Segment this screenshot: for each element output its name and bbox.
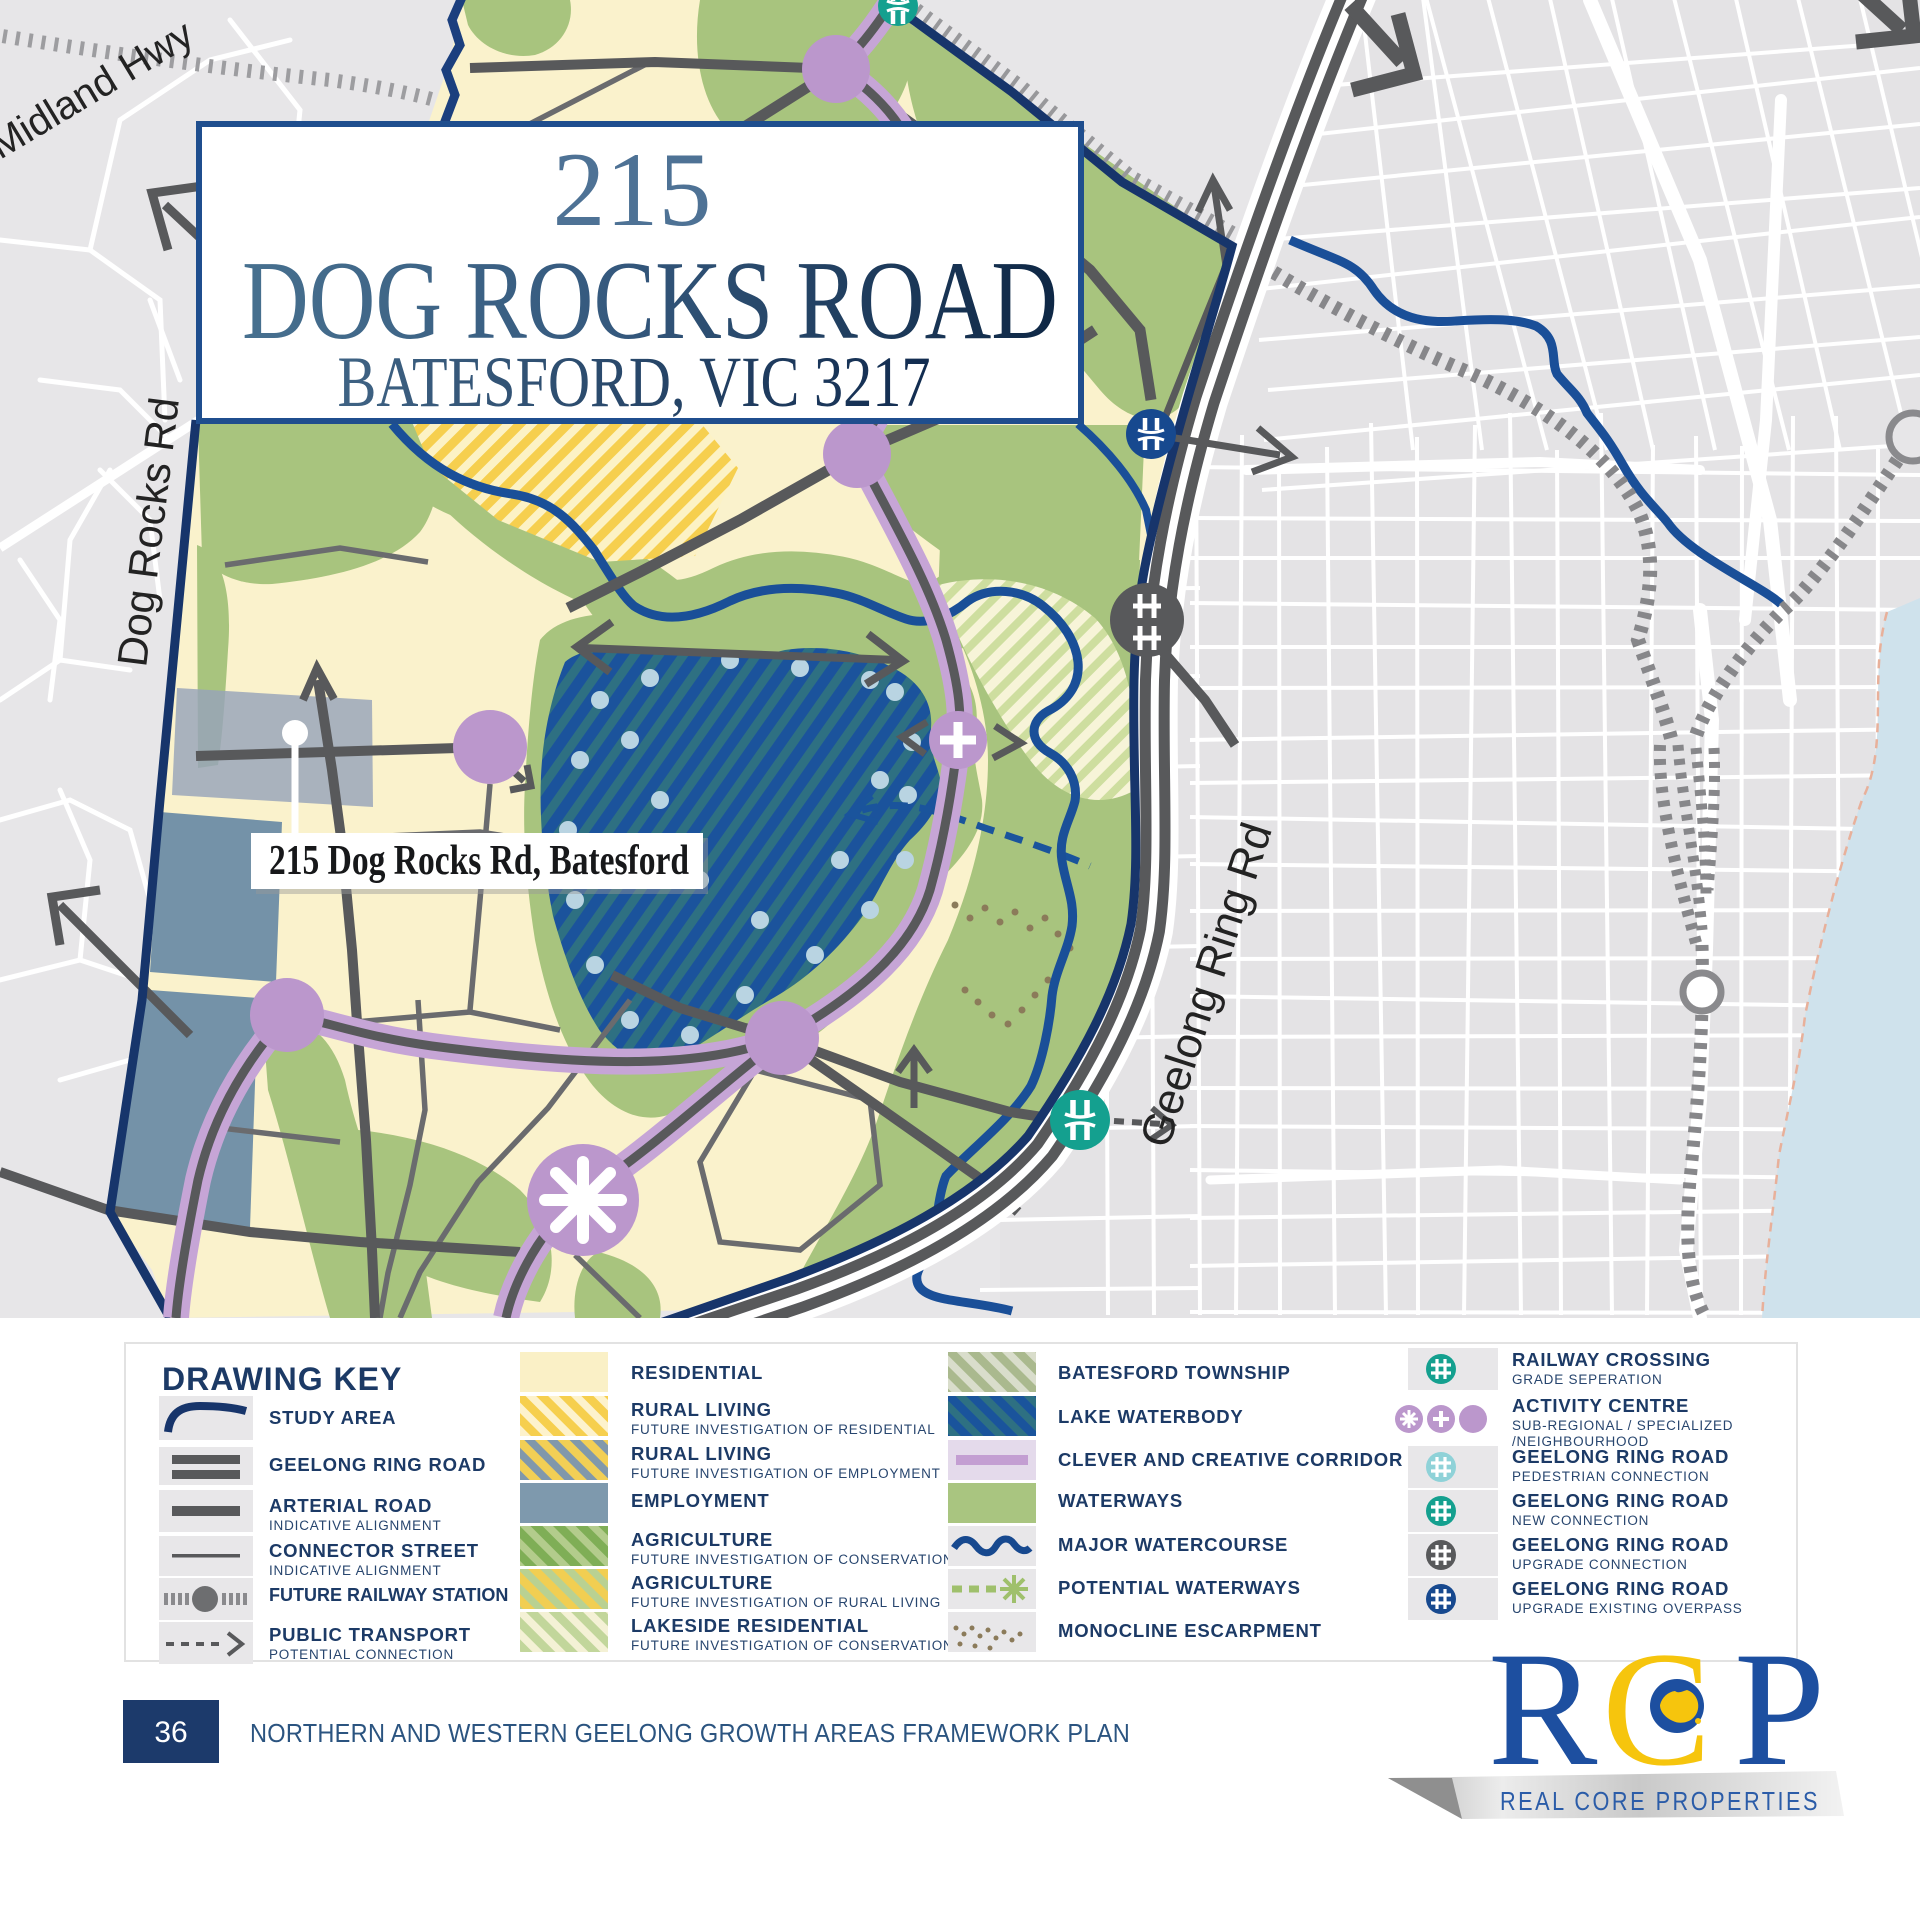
svg-text:RURAL LIVING: RURAL LIVING <box>631 1399 772 1420</box>
svg-text:FUTURE INVESTIGATION OF RESIDE: FUTURE INVESTIGATION OF RESIDENTIAL <box>631 1422 936 1437</box>
svg-text:FUTURE RAILWAY STATION: FUTURE RAILWAY STATION <box>269 1585 508 1605</box>
svg-text:POTENTIAL CONNECTION: POTENTIAL CONNECTION <box>269 1647 454 1662</box>
svg-text:MONOCLINE ESCARPMENT: MONOCLINE ESCARPMENT <box>1058 1620 1322 1641</box>
svg-text:GEELONG RING ROAD: GEELONG RING ROAD <box>1512 1490 1729 1511</box>
svg-text:FUTURE INVESTIGATION OF CONSER: FUTURE INVESTIGATION OF CONSERVATION <box>631 1552 954 1567</box>
svg-text:DRAWING KEY: DRAWING KEY <box>162 1361 402 1397</box>
svg-text:215 Dog Rocks Rd, Batesford: 215 Dog Rocks Rd, Batesford <box>269 838 689 884</box>
svg-text:EMPLOYMENT: EMPLOYMENT <box>631 1490 770 1511</box>
svg-text:WATERWAYS: WATERWAYS <box>1058 1490 1183 1511</box>
svg-text:UPGRADE CONNECTION: UPGRADE CONNECTION <box>1512 1557 1688 1572</box>
svg-text:NEW CONNECTION: NEW CONNECTION <box>1512 1513 1649 1528</box>
svg-text:ARTERIAL ROAD: ARTERIAL ROAD <box>269 1495 432 1516</box>
svg-text:RURAL LIVING: RURAL LIVING <box>631 1443 772 1464</box>
svg-text:INDICATIVE ALIGNMENT: INDICATIVE ALIGNMENT <box>269 1563 442 1578</box>
svg-text:36: 36 <box>154 1716 187 1749</box>
svg-text:INDICATIVE ALIGNMENT: INDICATIVE ALIGNMENT <box>269 1518 442 1533</box>
svg-text:ACTIVITY CENTRE: ACTIVITY CENTRE <box>1512 1395 1689 1416</box>
svg-text:CONNECTOR STREET: CONNECTOR STREET <box>269 1540 479 1561</box>
svg-text:REAL CORE PROPERTIES: REAL CORE PROPERTIES <box>1500 1786 1820 1816</box>
svg-text:GEELONG RING ROAD: GEELONG RING ROAD <box>1512 1534 1729 1555</box>
svg-text:GRADE SEPERATION: GRADE SEPERATION <box>1512 1372 1663 1387</box>
svg-text:BATESFORD, VIC 3217: BATESFORD, VIC 3217 <box>338 342 931 422</box>
svg-text:FUTURE INVESTIGATION OF CONSER: FUTURE INVESTIGATION OF CONSERVATION <box>631 1638 954 1653</box>
svg-text:FUTURE INVESTIGATION OF RURAL: FUTURE INVESTIGATION OF RURAL LIVING <box>631 1595 941 1610</box>
svg-text:215: 215 <box>553 131 712 248</box>
svg-text:POTENTIAL WATERWAYS: POTENTIAL WATERWAYS <box>1058 1577 1301 1598</box>
svg-text:AGRICULTURE: AGRICULTURE <box>631 1529 773 1550</box>
svg-text:GEELONG RING ROAD: GEELONG RING ROAD <box>1512 1446 1729 1467</box>
svg-text:PUBLIC TRANSPORT: PUBLIC TRANSPORT <box>269 1624 471 1645</box>
svg-text:RAILWAY CROSSING: RAILWAY CROSSING <box>1512 1349 1711 1370</box>
svg-text:SUB-REGIONAL / SPECIALIZED: SUB-REGIONAL / SPECIALIZED <box>1512 1418 1733 1433</box>
svg-text:/NEIGHBOURHOOD: /NEIGHBOURHOOD <box>1512 1434 1649 1449</box>
svg-text:GEELONG RING ROAD: GEELONG RING ROAD <box>269 1454 486 1475</box>
svg-text:BATESFORD TOWNSHIP: BATESFORD TOWNSHIP <box>1058 1362 1291 1383</box>
svg-text:PEDESTRIAN CONNECTION: PEDESTRIAN CONNECTION <box>1512 1469 1710 1484</box>
svg-text:UPGRADE EXISTING OVERPASS: UPGRADE EXISTING OVERPASS <box>1512 1601 1743 1616</box>
svg-text:LAKESIDE RESIDENTIAL: LAKESIDE RESIDENTIAL <box>631 1615 869 1636</box>
svg-text:RESIDENTIAL: RESIDENTIAL <box>631 1362 763 1383</box>
svg-text:NORTHERN AND WESTERN GEELONG G: NORTHERN AND WESTERN GEELONG GROWTH AREA… <box>250 1718 1130 1748</box>
svg-text:LAKE WATERBODY: LAKE WATERBODY <box>1058 1406 1244 1427</box>
svg-text:AGRICULTURE: AGRICULTURE <box>631 1572 773 1593</box>
svg-text:FUTURE INVESTIGATION OF EMPLOY: FUTURE INVESTIGATION OF EMPLOYMENT <box>631 1466 941 1481</box>
svg-text:CLEVER AND CREATIVE CORRIDOR: CLEVER AND CREATIVE CORRIDOR <box>1058 1449 1403 1470</box>
svg-text:MAJOR WATERCOURSE: MAJOR WATERCOURSE <box>1058 1534 1288 1555</box>
svg-text:STUDY AREA: STUDY AREA <box>269 1407 396 1428</box>
svg-text:GEELONG RING ROAD: GEELONG RING ROAD <box>1512 1578 1729 1599</box>
svg-text:R: R <box>1488 1619 1598 1800</box>
svg-text:P: P <box>1734 1619 1825 1800</box>
